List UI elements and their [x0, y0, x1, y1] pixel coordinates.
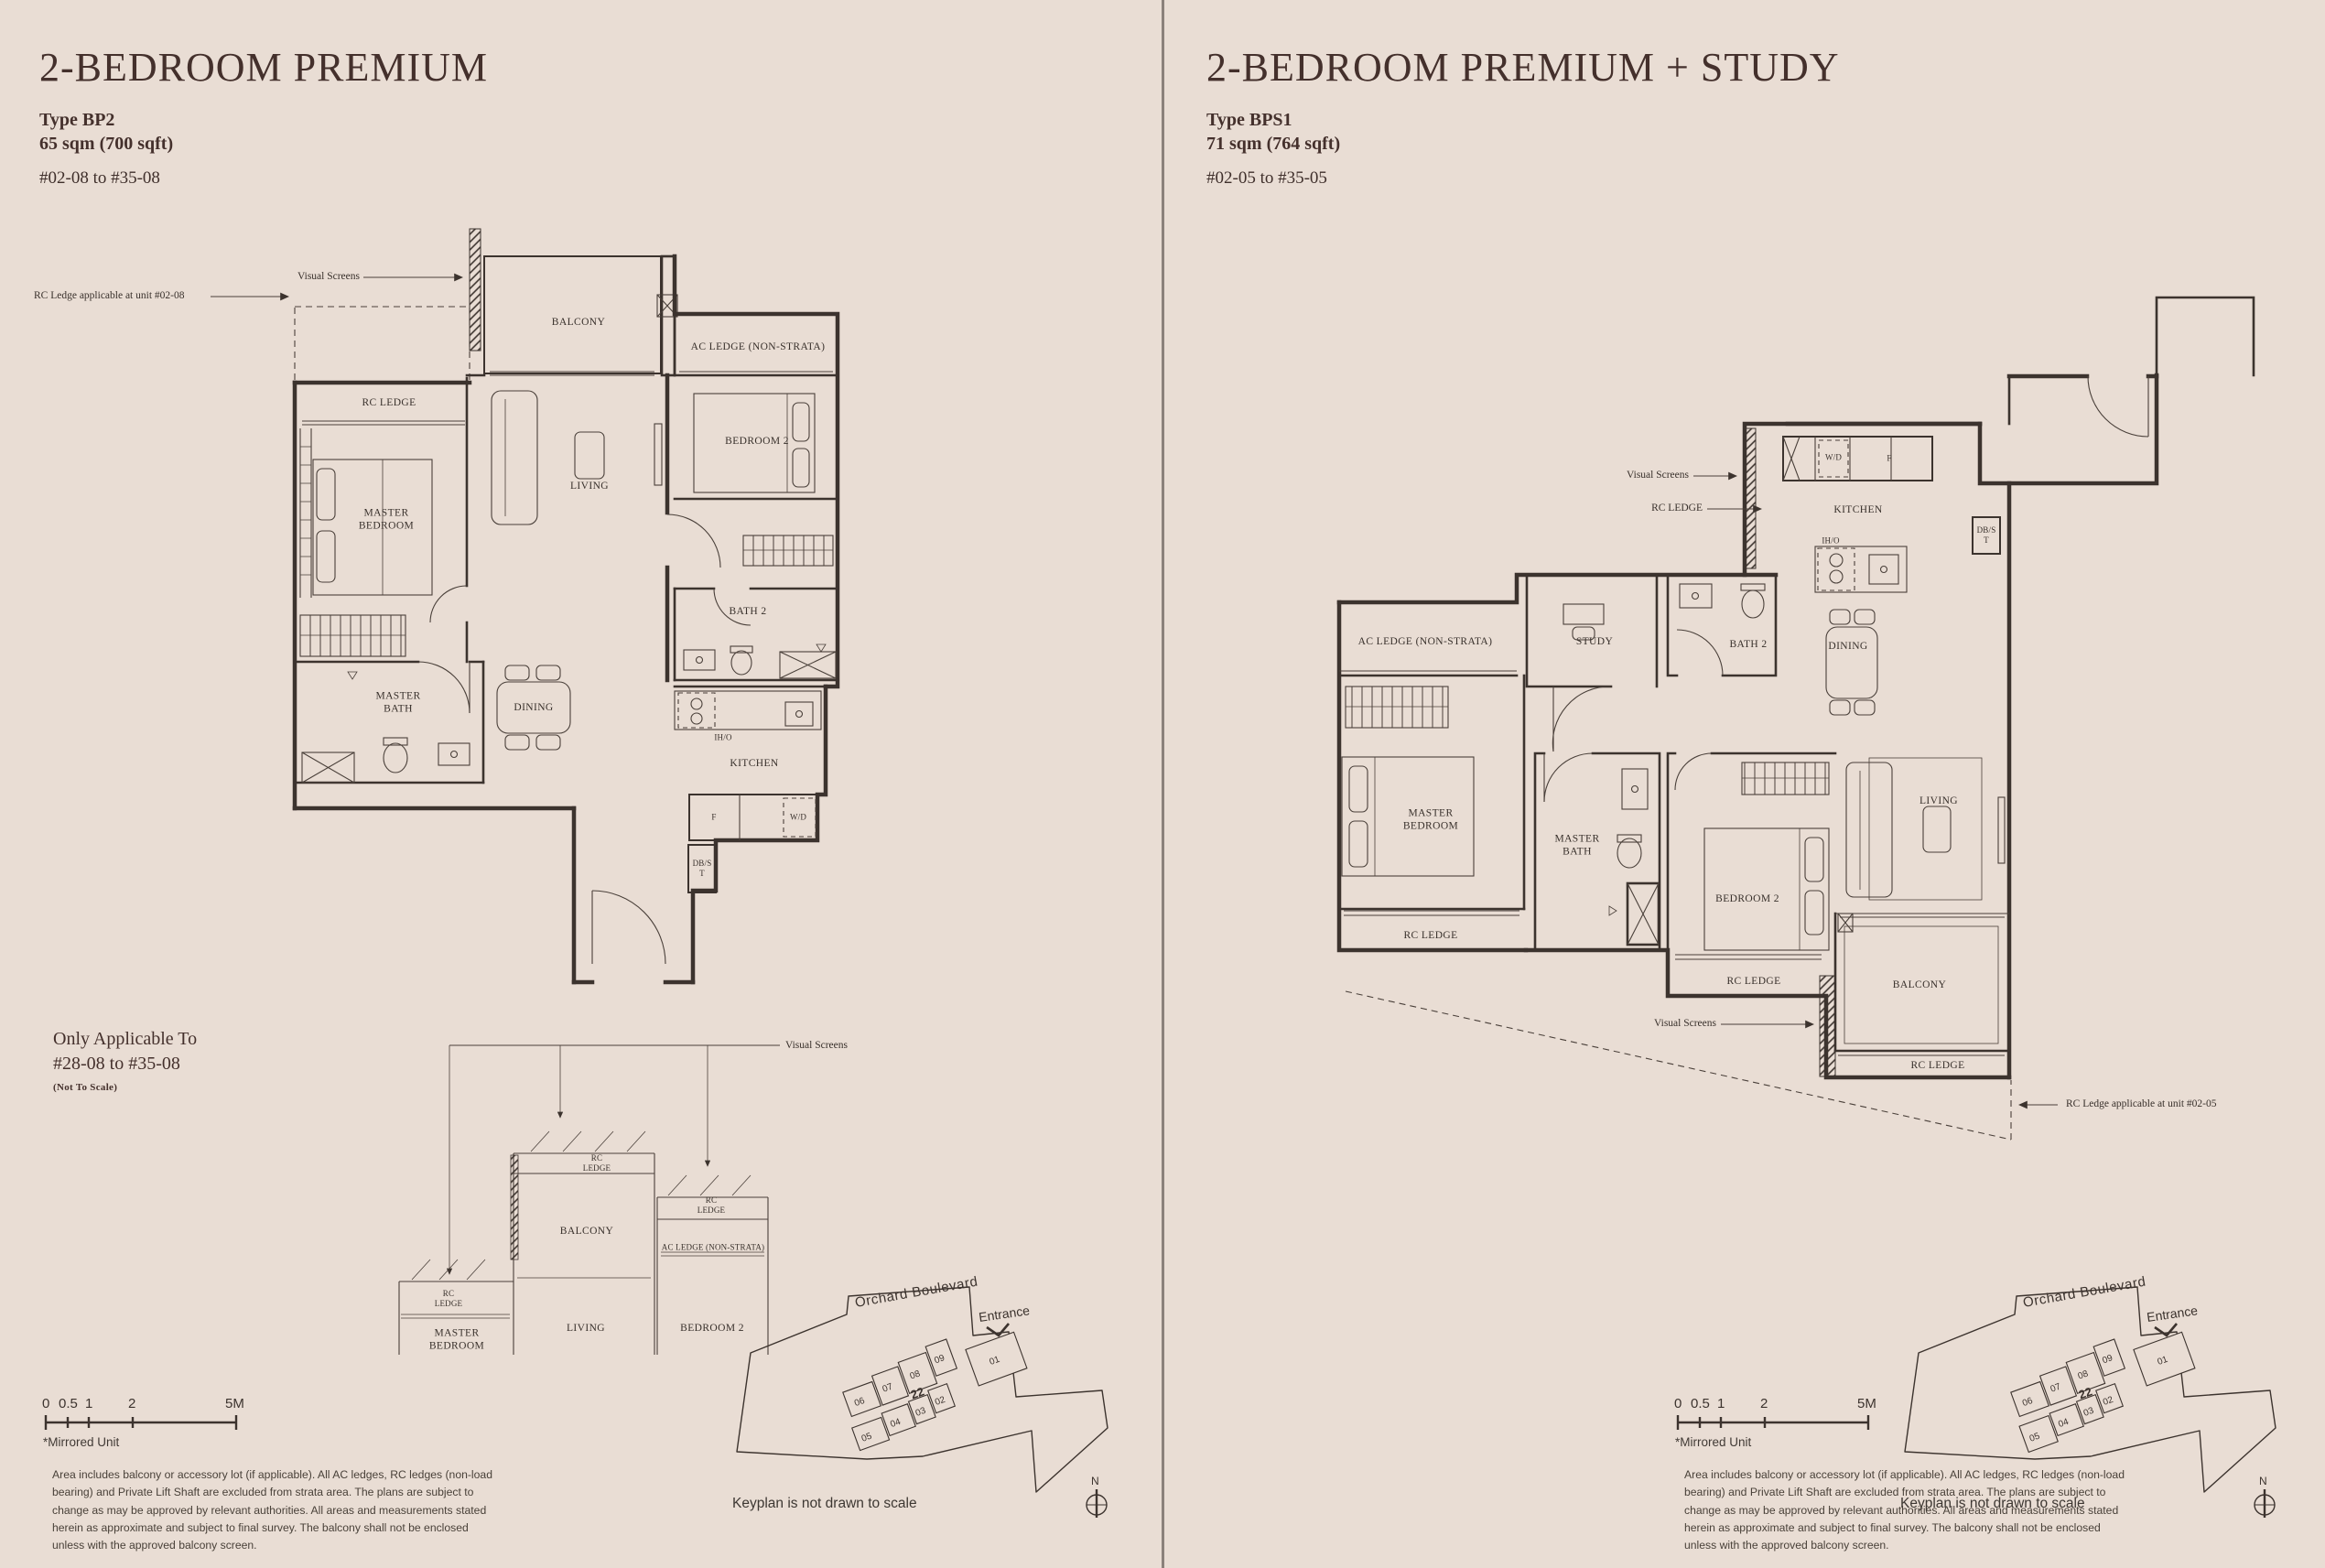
callout-arrows	[0, 0, 2325, 1568]
brochure-page: { "colors": { "background": "#e9ddd4", "…	[0, 0, 2325, 1568]
